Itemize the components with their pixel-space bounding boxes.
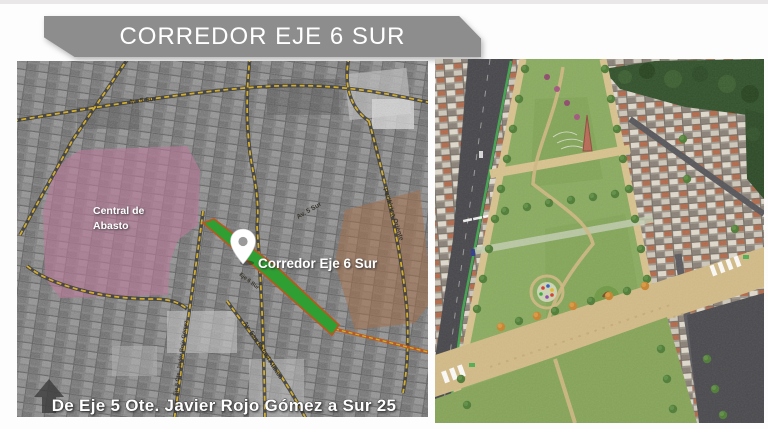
- map-svg: Central de Abasto Corredor Eje 6 Sur Av.…: [17, 61, 428, 417]
- render-svg: [435, 59, 764, 423]
- map-image: Central de Abasto Corredor Eje 6 Sur Av.…: [17, 61, 428, 417]
- map-caption: De Eje 5 Ote. Javier Rojo Gómez a Sur 25: [52, 396, 397, 415]
- slide-top-edge: [0, 0, 768, 4]
- render-grain: [435, 59, 764, 423]
- central-abasto-label-1: Central de: [93, 205, 145, 217]
- slide-title: CORREDOR EJE 6 SUR: [119, 23, 405, 51]
- title-banner-shape: CORREDOR EJE 6 SUR: [44, 16, 481, 57]
- render-image: [435, 59, 764, 423]
- central-abasto-label-2: Abasto: [93, 220, 129, 232]
- corridor-label: Corredor Eje 6 Sur: [258, 256, 378, 271]
